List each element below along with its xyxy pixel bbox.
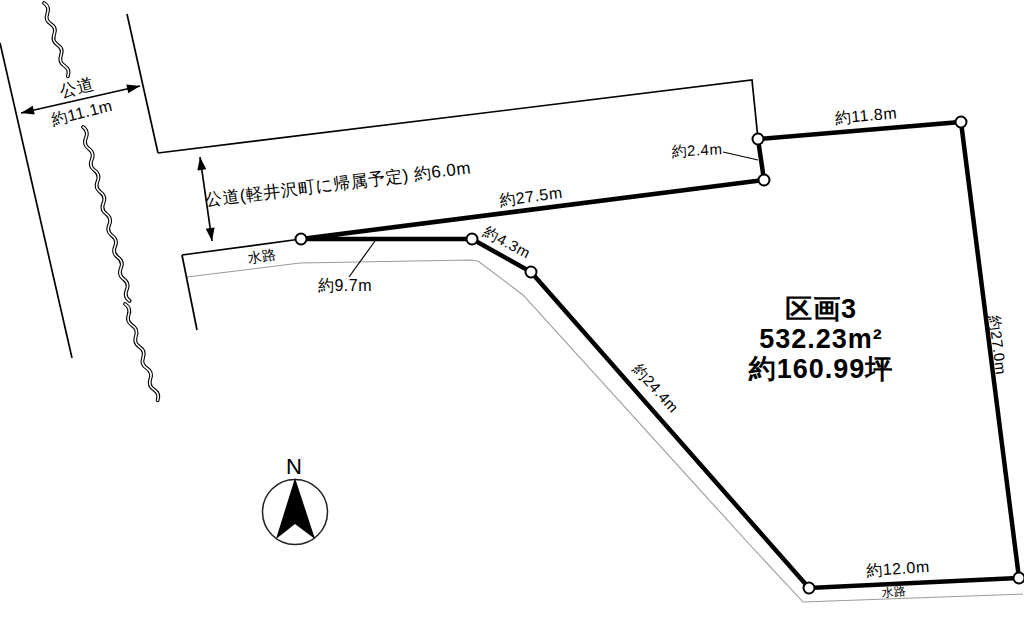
compass-north-label: N	[286, 454, 302, 480]
stream-wavy-line-upper	[42, 2, 70, 77]
land-plot-diagram: N 公道 約11.1m 公道(軽井沢町に帰属予定) 約6.0m 水路 水路 約9…	[0, 0, 1024, 619]
vertex-marker	[526, 267, 537, 278]
vertex-markers	[296, 117, 1024, 594]
compass-needle	[276, 478, 315, 539]
parcel-left-short-edge	[182, 255, 197, 330]
vertex-marker	[759, 175, 770, 186]
plot-area-m2: 532.23m²	[749, 324, 894, 354]
north-compass	[263, 478, 328, 545]
waterway-outline	[187, 260, 1023, 602]
leader-line-9-7m	[349, 241, 375, 277]
vertex-marker	[1014, 573, 1024, 584]
plot-boundary-polygon	[301, 122, 1019, 588]
vertex-marker	[296, 234, 307, 245]
plot-name: 区画3	[749, 294, 894, 324]
road-right-edge-line	[127, 14, 158, 153]
waterway-bottom-label: 水路	[881, 585, 907, 599]
vertex-marker	[753, 134, 764, 145]
dim-label-9-7m: 約9.7m	[318, 278, 372, 294]
vertex-marker	[956, 117, 967, 128]
road-strip-bottom-edge	[182, 239, 301, 255]
plot-info-block: 区画3 532.23m² 約160.99坪	[749, 294, 894, 384]
vertex-marker	[467, 234, 478, 245]
road-strip-top-edge	[158, 80, 758, 153]
stream-wavy-line-lower	[123, 303, 160, 401]
plot-area-tsubo: 約160.99坪	[749, 354, 894, 384]
vertex-marker	[804, 583, 815, 594]
stream-wavy-line-middle	[81, 126, 132, 301]
leader-line-2-4m	[723, 152, 758, 160]
dim-label-2-4m: 約2.4m	[671, 141, 723, 159]
